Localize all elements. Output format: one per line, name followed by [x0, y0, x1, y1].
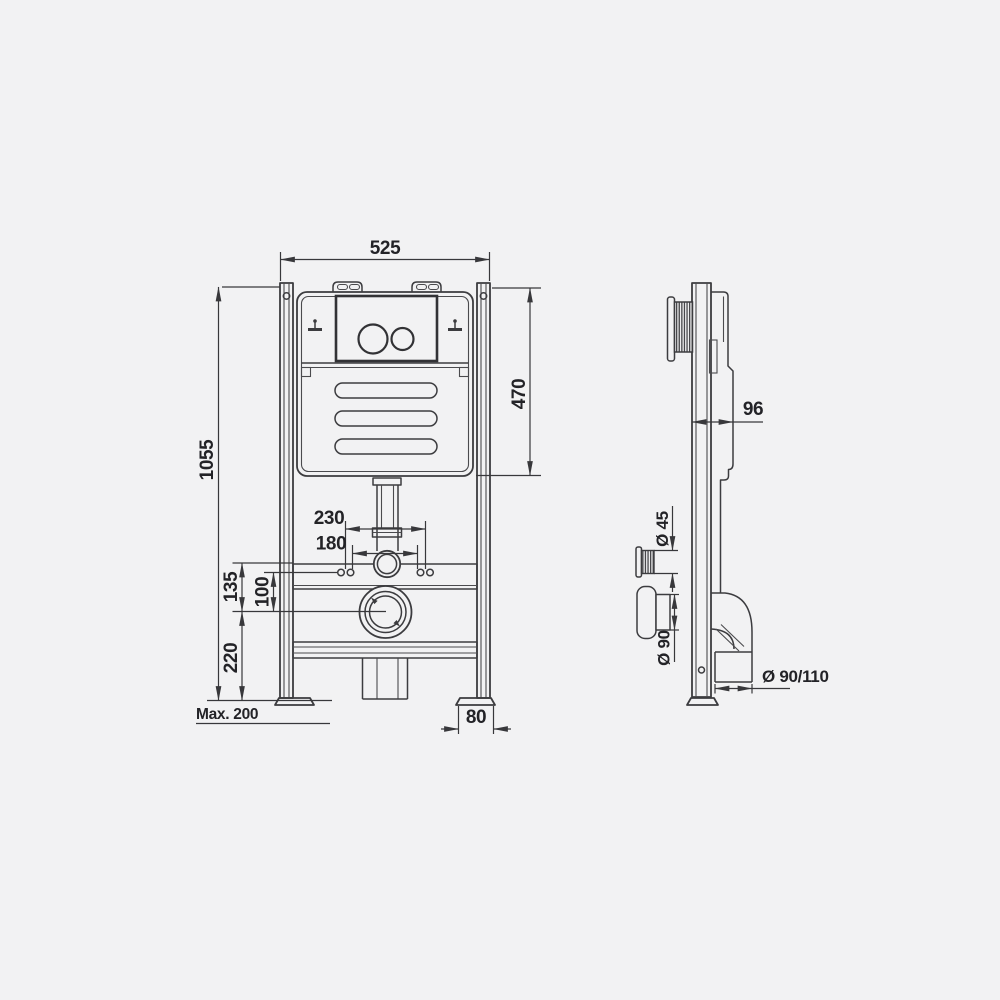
dim-overall-width: 525 [281, 238, 490, 281]
dim-label-230: 230 [314, 508, 345, 529]
dim-label-470: 470 [509, 379, 530, 410]
frame-rail-right [477, 283, 490, 698]
flush-actuator-box [668, 297, 693, 361]
flush-pipe-connector [374, 551, 400, 577]
dim-label-180: 180 [316, 534, 347, 555]
dim-label-80: 80 [466, 707, 486, 728]
dim-drain-diameter: Ø 90/110 [715, 667, 829, 694]
dim-outlet-height: 220 [221, 612, 242, 701]
fixing-hole-icon [338, 569, 345, 576]
foot-right [456, 698, 495, 705]
fixing-hole-icon [427, 569, 434, 576]
side-foot [687, 698, 718, 705]
dim-label-220: 220 [221, 643, 242, 674]
dim-label-max200: Max. 200 [196, 706, 258, 723]
dim-connector-height: 135 [221, 563, 242, 612]
mounting-tab-left [333, 282, 362, 292]
lower-crossbar [293, 642, 477, 658]
dim-label-100: 100 [253, 577, 274, 608]
flush-pipe [373, 478, 402, 551]
dim-foot-width: 80 [441, 706, 511, 734]
technical-drawing: 525 1055 470 230 180 [0, 0, 1000, 1000]
dim-frame-depth: 96 [692, 399, 763, 422]
dim-inlet-diameter: Ø 45 [653, 506, 678, 592]
dimension-annotations: 525 1055 470 230 180 [196, 238, 829, 734]
rail-hole-icon [699, 667, 705, 673]
inlet-pipe [636, 547, 654, 577]
bottom-support [363, 658, 408, 699]
mounting-tab-right [412, 282, 441, 292]
side-view [636, 283, 752, 705]
dim-label-135: 135 [221, 571, 242, 602]
dim-label-96: 96 [743, 399, 763, 420]
dim-label-overall-width: 525 [370, 238, 401, 259]
drawing-canvas: 525 1055 470 230 180 [0, 0, 1000, 1000]
flush-plate [336, 296, 437, 361]
fixing-hole-icon [347, 569, 354, 576]
side-rail [692, 283, 711, 697]
foot-left [275, 698, 314, 705]
dim-label-dia45: Ø 45 [653, 511, 672, 547]
fixing-hole-icon [417, 569, 424, 576]
dim-label-1055: 1055 [197, 439, 218, 481]
dim-label-dia90: Ø 90 [655, 630, 674, 666]
side-cistern-profile [710, 292, 734, 593]
dim-fixings-height: 100 [253, 573, 274, 612]
drain-elbow [711, 593, 752, 682]
dim-label-dia90-110: Ø 90/110 [762, 667, 829, 686]
frame-rail-left [280, 283, 293, 698]
dim-max-leg-adjust: Max. 200 [196, 706, 330, 724]
front-view [275, 282, 495, 705]
